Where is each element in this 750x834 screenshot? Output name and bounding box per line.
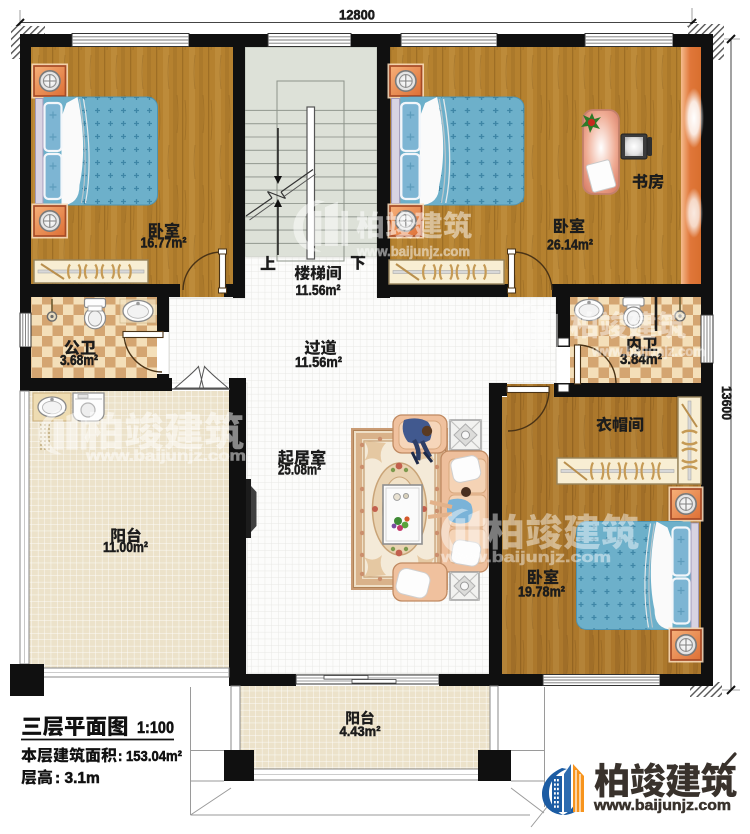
svg-text:12800: 12800: [339, 7, 375, 23]
svg-text:13600: 13600: [719, 386, 734, 420]
svg-text:3.68m²: 3.68m²: [60, 352, 98, 369]
svg-text:16.77m²: 16.77m²: [141, 235, 187, 252]
svg-text:25.08m²: 25.08m²: [278, 462, 321, 479]
svg-text:www.baijunjz.com: www.baijunjz.com: [356, 244, 470, 259]
svg-text:19.78m²: 19.78m²: [518, 584, 565, 601]
svg-text:11.00m²: 11.00m²: [103, 539, 148, 556]
svg-text:11.56m²: 11.56m²: [295, 354, 342, 371]
svg-text:11.56m²: 11.56m²: [296, 282, 341, 299]
svg-text:1:100: 1:100: [137, 719, 174, 737]
svg-text:www.baijunjz.com: www.baijunjz.com: [440, 549, 611, 566]
svg-text:26.14m²: 26.14m²: [547, 237, 593, 254]
svg-text:www.baijunjz.com: www.baijunjz.com: [85, 449, 246, 465]
svg-text:4.43m²: 4.43m²: [340, 724, 381, 740]
svg-text:www.baijunjz.com: www.baijunjz.com: [591, 344, 705, 359]
svg-text:www.baijunjz.com: www.baijunjz.com: [593, 798, 731, 814]
svg-text:: 3.1m: : 3.1m: [55, 770, 100, 787]
svg-text:: 153.04m²: : 153.04m²: [118, 748, 182, 765]
